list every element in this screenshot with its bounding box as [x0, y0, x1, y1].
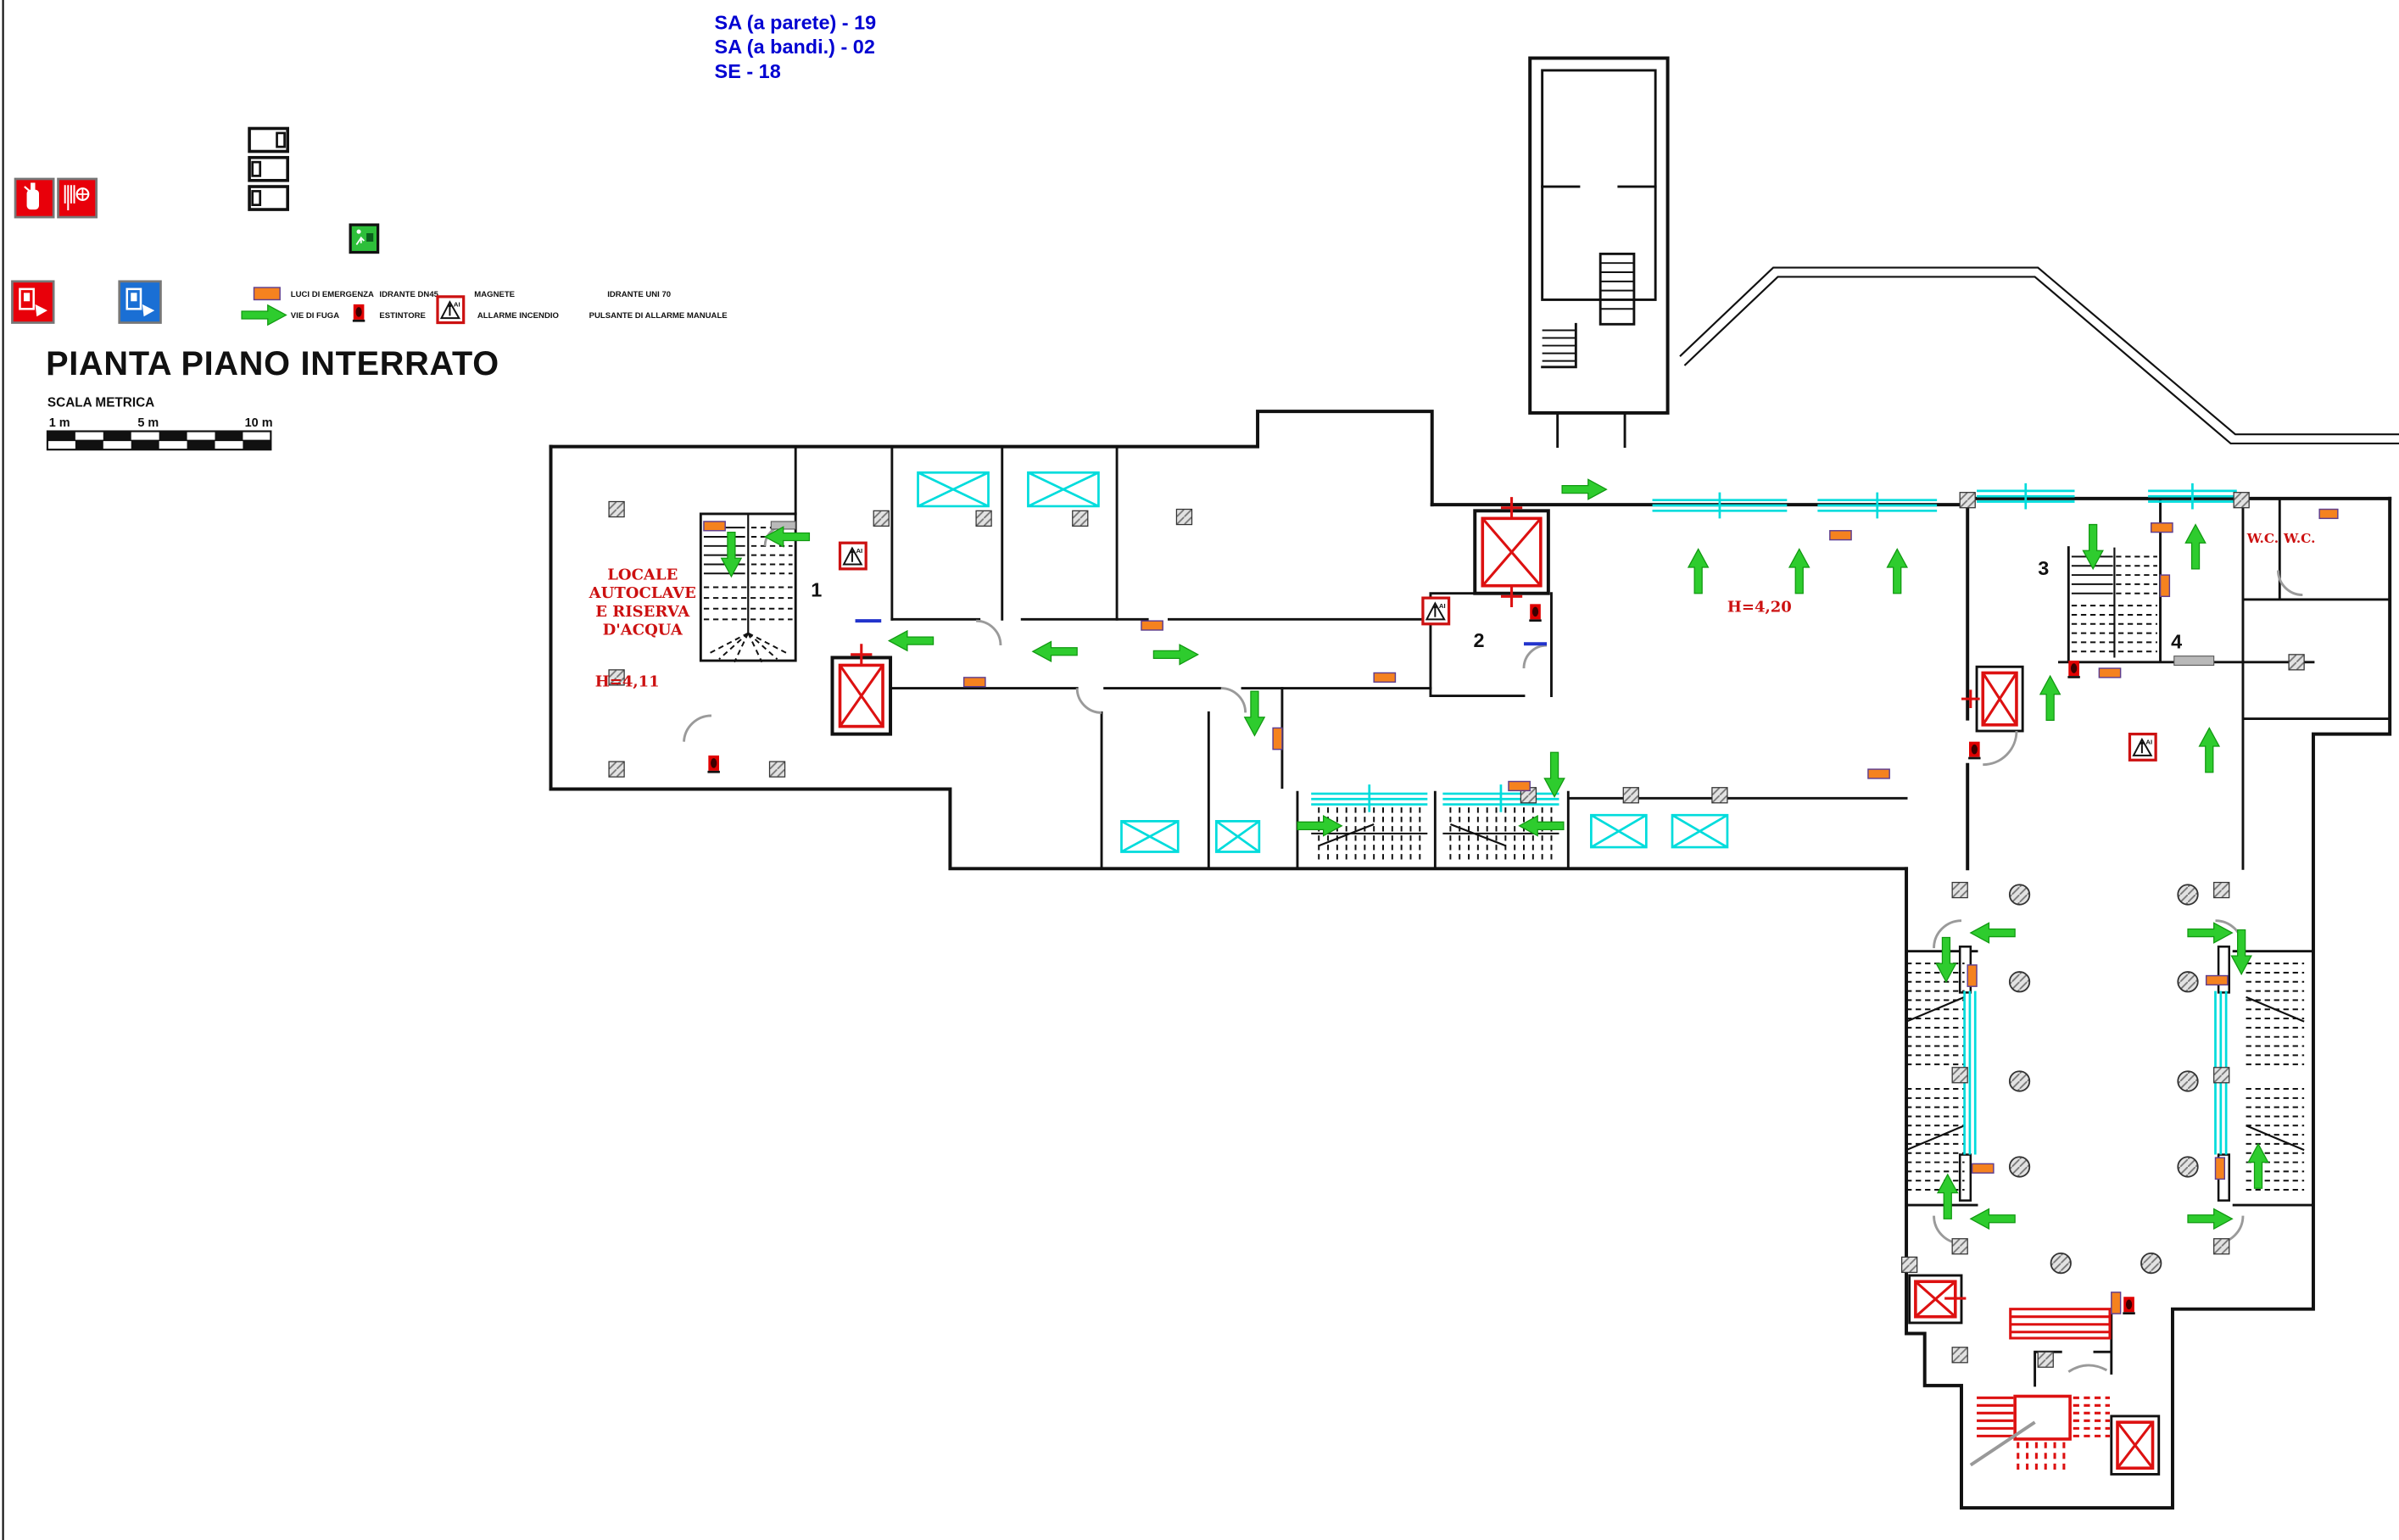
fire-extinguisher-sign-icon — [15, 179, 53, 217]
scale-tick-10m: 10 m — [245, 416, 273, 430]
legend-label-magnete: MAGNETE — [474, 290, 515, 299]
legend-label-idrante-uni70: IDRANTE UNI 70 — [607, 290, 671, 299]
legend-fire-alarm-abbr: AI — [454, 301, 460, 309]
wc-label-left: W.C. — [2246, 531, 2279, 546]
light-fixture-symbols — [249, 128, 287, 209]
window-strips — [1653, 483, 2237, 518]
legend-label-allarme: ALLARME INCENDIO — [477, 311, 560, 321]
legend-label-vie: VIE DI FUGA — [291, 311, 339, 321]
legend: LUCI DI EMERGENZA VIE DI FUGA IDRANTE DN… — [242, 287, 728, 325]
building-plan: AI AI AI LOCALE AUTOCLAVE E RISERVA D'AC… — [551, 59, 2399, 1509]
stair-number-2: 2 — [1473, 629, 1484, 651]
scale-tick-5m: 5 m — [137, 416, 159, 430]
elevator-1 — [832, 644, 890, 734]
emergency-lights — [704, 510, 2338, 1314]
svg-text:E RISERVA: E RISERVA — [595, 603, 690, 621]
svg-text:AUTOCLAVE: AUTOCLAVE — [589, 584, 696, 602]
manual-alarm-red-sign-icon — [12, 282, 53, 323]
ramp-outline — [1680, 268, 2399, 444]
note-sa-bandiera: SA (a bandi.) - 02 — [715, 36, 875, 58]
elevator-4 — [1910, 1275, 1967, 1323]
svg-text:AI: AI — [856, 547, 862, 555]
note-se: SE - 18 — [715, 60, 781, 82]
red-stair — [1971, 1309, 2110, 1471]
legend-escape-arrow-icon — [242, 305, 286, 325]
tower-stairwell — [1530, 59, 1667, 447]
scale-bar-label: SCALA METRICA — [47, 396, 154, 410]
legend-label-estintore: ESTINTORE — [379, 311, 425, 321]
fire-hose-sign-icon — [59, 179, 97, 217]
floor-plan-canvas: SA (a parete) - 19 SA (a bandi.) - 02 SE… — [0, 0, 2399, 1540]
scale-tick-1m: 1 m — [49, 416, 70, 430]
legend-emergency-light-swatch — [254, 287, 280, 299]
columns — [609, 493, 2304, 1368]
legend-label-idrante-dn45: IDRANTE DN45 — [379, 290, 438, 299]
wc-label-right: W.C. — [2283, 531, 2315, 546]
elevator-5 — [2112, 1416, 2159, 1475]
header-notes: SA (a parete) - 19 SA (a bandi.) - 02 SE… — [715, 11, 877, 82]
elevator-2 — [1475, 497, 1548, 607]
stair-number-1: 1 — [811, 578, 822, 600]
scale-bar-checker — [47, 432, 271, 450]
manual-alarm-blue-sign-icon — [120, 282, 161, 323]
elevator-3 — [1961, 667, 2022, 731]
ceiling-height-center: H=4,20 — [1727, 598, 1792, 616]
legend-extinguisher-icon — [353, 304, 365, 322]
door-arcs — [683, 522, 2302, 1372]
stair-3 — [2072, 548, 2157, 658]
autoclave-room-label: LOCALE — [607, 566, 678, 583]
legend-label-luci: LUCI DI EMERGENZA — [291, 290, 374, 299]
svg-text:AI: AI — [2145, 738, 2152, 745]
svg-text:D'ACQUA: D'ACQUA — [603, 621, 683, 639]
stair-number-3: 3 — [2038, 557, 2049, 579]
vent-boxes — [918, 472, 1727, 851]
scale-bar: SCALA METRICA 1 m 5 m 10 m — [47, 396, 273, 449]
page-title: PIANTA PIANO INTERRATO — [46, 345, 499, 382]
stair-number-4: 4 — [2171, 631, 2182, 653]
svg-text:AI: AI — [1439, 602, 1446, 610]
plan-extinguisher-icons — [707, 604, 2134, 1314]
exit-sign-icon — [350, 225, 377, 252]
note-sa-parete: SA (a parete) - 19 — [715, 11, 877, 33]
ceiling-height-left: H=4,11 — [595, 673, 660, 691]
legend-label-pulsante: PULSANTE DI ALLARME MANUALE — [589, 311, 728, 321]
